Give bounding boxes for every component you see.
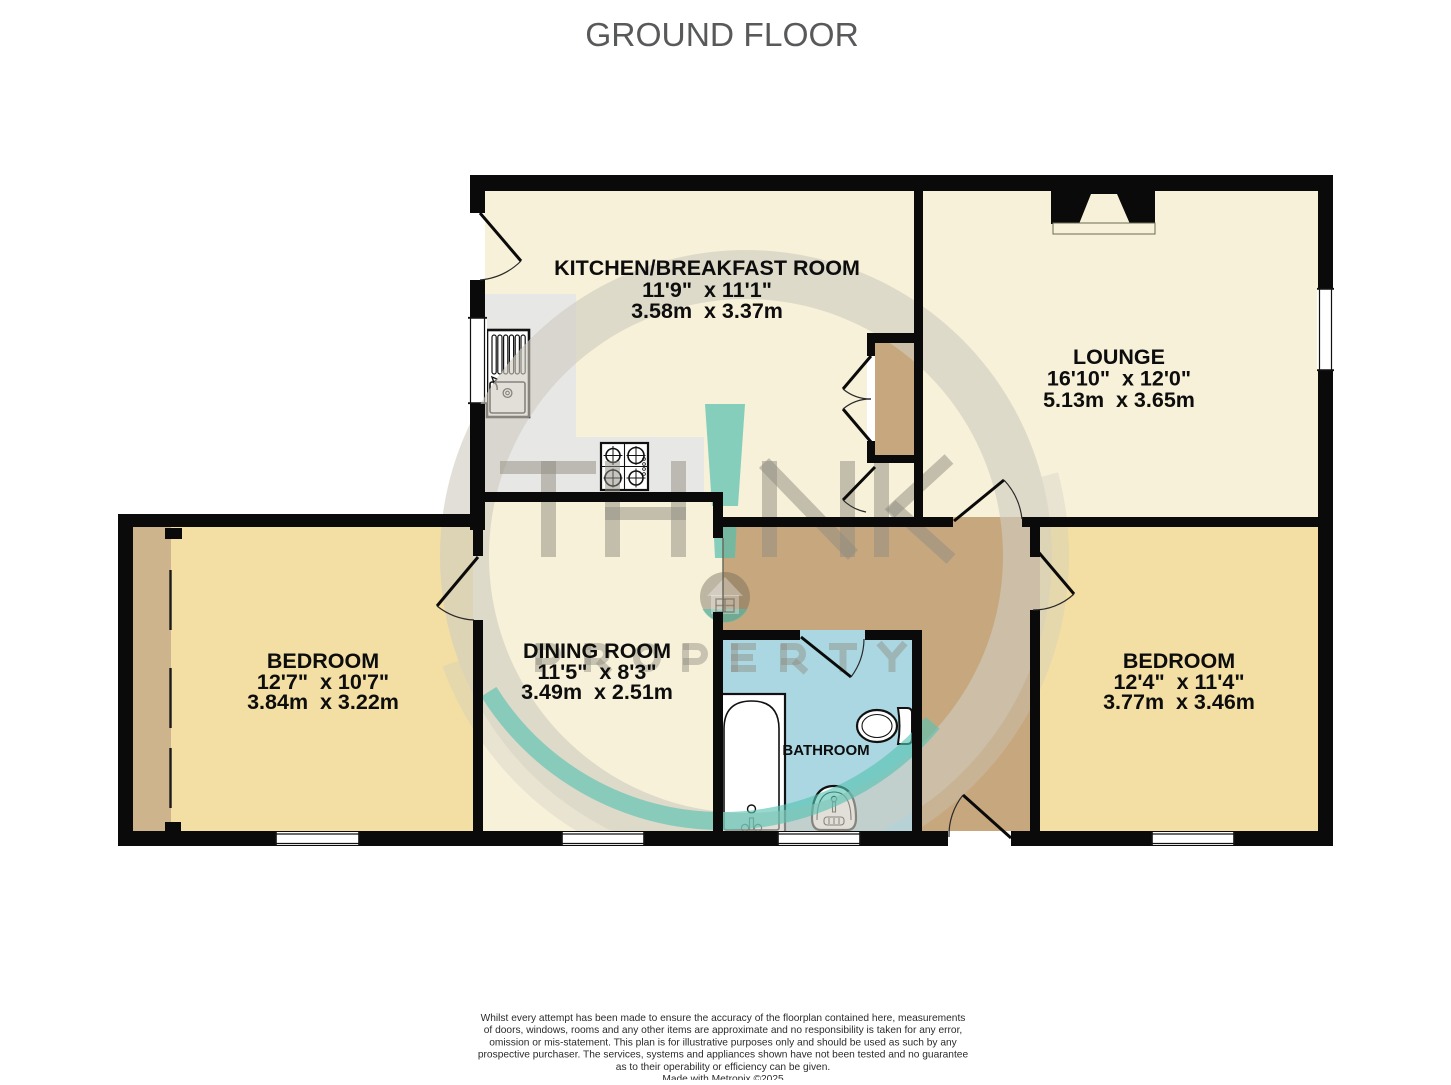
svg-text:GROUND FLOOR: GROUND FLOOR bbox=[585, 17, 859, 54]
svg-text:of doors, windows, rooms and a: of doors, windows, rooms and any other i… bbox=[484, 1025, 962, 1036]
svg-text:Made with Metropix ©2025: Made with Metropix ©2025 bbox=[662, 1074, 784, 1080]
svg-text:KITCHEN/BREAKFAST ROOM: KITCHEN/BREAKFAST ROOM bbox=[554, 256, 860, 280]
svg-text:16'10" x 12'0": 16'10" x 12'0" bbox=[1047, 367, 1191, 391]
svg-text:BATHROOM: BATHROOM bbox=[782, 742, 869, 759]
svg-text:prospective purchaser. The ser: prospective purchaser. The services, sys… bbox=[478, 1050, 969, 1061]
svg-text:5.13m x 3.65m: 5.13m x 3.65m bbox=[1043, 388, 1195, 412]
svg-text:as to their operability or eff: as to their operability or efficiency ca… bbox=[616, 1062, 830, 1073]
svg-text:Whilst every attempt has been: Whilst every attempt has been made to en… bbox=[481, 1013, 966, 1024]
svg-text:3.77m x 3.46m: 3.77m x 3.46m bbox=[1103, 690, 1255, 714]
svg-text:LOUNGE: LOUNGE bbox=[1073, 345, 1165, 369]
svg-text:omission or mis-statement. Thi: omission or mis-statement. This plan is … bbox=[489, 1037, 957, 1048]
svg-text:3.58m x 3.37m: 3.58m x 3.37m bbox=[631, 299, 783, 323]
svg-text:3.49m x 2.51m: 3.49m x 2.51m bbox=[521, 680, 673, 704]
svg-text:3.84m x 3.22m: 3.84m x 3.22m bbox=[247, 690, 399, 714]
